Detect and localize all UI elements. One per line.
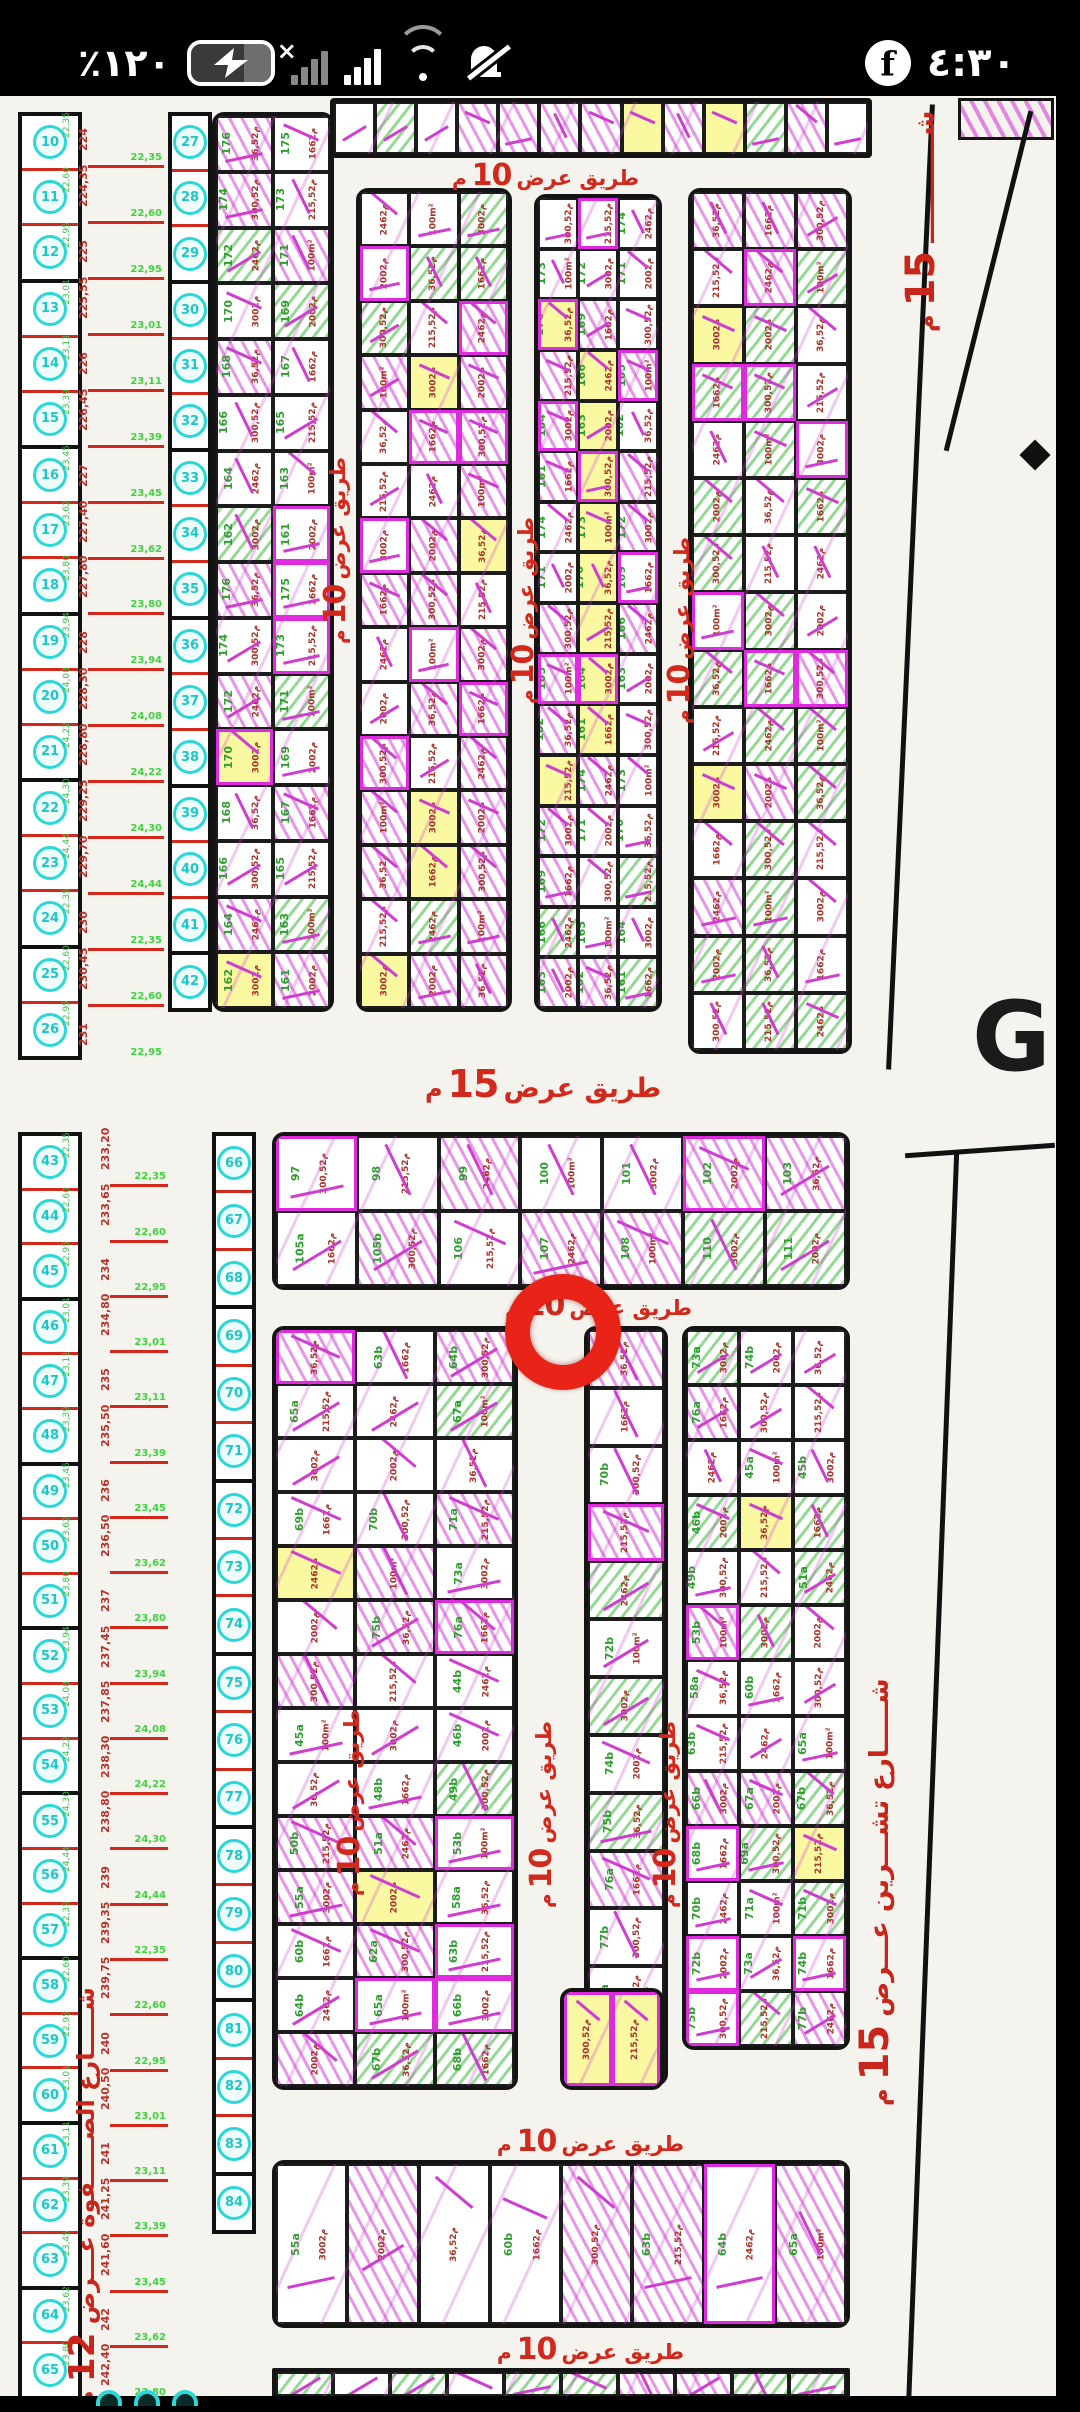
plot-cell: 176300,5م2 — [538, 198, 578, 249]
plot-line — [344, 2376, 378, 2396]
plot-area-label: 246م2 — [645, 207, 654, 239]
dimension-label: 23,94 — [130, 655, 162, 666]
plot-row: 76 — [216, 1713, 252, 1770]
plot-cell: 10336,5م2 — [765, 1136, 846, 1211]
plot-cell: 36,5م2 — [793, 1330, 846, 1385]
plot-block: 73a300م274b200م236,5م276a166م2300,5م2215… — [682, 1326, 850, 2050]
plot-number: 167 — [280, 801, 291, 824]
plot-cell: 63b166م2 — [355, 1330, 434, 1384]
plot-cell: 45b300م2 — [793, 1440, 846, 1495]
plot-circle-strip: 1022,351122,601222,951323,011423,111523,… — [18, 112, 82, 1060]
plot-cell — [539, 102, 580, 154]
plot-number-circle: 38 — [173, 740, 207, 774]
plot-number: 169 — [280, 300, 291, 323]
plot-cell: 167166م2 — [273, 339, 330, 395]
survey-number: 234,80 — [99, 1294, 112, 1336]
plot-number: 172 — [223, 244, 234, 267]
survey-row: 228,8024,22 — [88, 727, 164, 783]
plot-number: 163 — [279, 467, 290, 490]
plot-number: 106 — [453, 1237, 464, 1260]
plot-cell: 77b246م2 — [793, 1991, 846, 2046]
plot-cell: 164246م2 — [216, 451, 273, 507]
plot-cell: 100m² — [409, 192, 458, 246]
plot-number: 107 — [539, 1237, 550, 1260]
plot-line — [290, 1184, 344, 1198]
plot-row: 1423,11 — [22, 338, 78, 393]
plot-code: 69b — [294, 1507, 305, 1530]
plot-number: 171 — [279, 690, 290, 713]
location-ring-marker — [505, 1274, 621, 1390]
dimension-label: 23,80 — [134, 1613, 166, 1624]
survey-number: 227,80 — [77, 556, 90, 598]
plot-row: 70 — [216, 1367, 252, 1424]
plot-cell — [622, 102, 663, 154]
plot-area-label: 300,5م2 — [252, 179, 261, 220]
plot-number: 111 — [783, 1237, 794, 1260]
plot-number-circle: 34 — [173, 517, 207, 551]
plot-cell: 67b36,5م2 — [793, 1771, 846, 1826]
plot-number: 176 — [578, 465, 582, 488]
plot-cell: 300م2 — [360, 518, 409, 572]
plot-block: 17636,5م2175166م2174300,5م2173215,5م2172… — [212, 112, 334, 1012]
plot-cell: 215,5م2 — [793, 1826, 846, 1881]
survey-number: 233,20 — [99, 1128, 112, 1170]
plot-code: 49b — [448, 1777, 459, 1800]
plot-cell: 200م2 — [360, 246, 409, 300]
plot-cell: 169166م2 — [578, 299, 618, 350]
plot-code: 63b — [686, 1731, 697, 1754]
plot-area-label: 100m² — [309, 462, 318, 494]
plot-number: 175 — [618, 465, 622, 488]
cadastral-map-photo[interactable]: 1022,351122,601222,951323,011423,111523,… — [0, 96, 1056, 2412]
plot-code: 64b — [717, 2232, 728, 2255]
plot-cell: 300,5م2 — [459, 845, 508, 899]
plot-row: 27 — [172, 116, 208, 172]
plot-cell: 300م2 — [459, 192, 508, 246]
plot-number: 172 — [223, 690, 234, 713]
plot-area-label: 246م2 — [252, 909, 261, 941]
plot-area-label: 246م2 — [565, 916, 574, 948]
road-label-10m-vertical: م10طريق عرض — [506, 504, 541, 704]
plot-cell: 64b246م2 — [276, 1978, 355, 2032]
plot-cell: 36,5م2 — [409, 246, 458, 300]
plot-area-label: 300م2 — [319, 2228, 328, 2260]
survey-row: 237,8524,08 — [110, 1685, 168, 1740]
survey-row: 241,2523,39 — [110, 2182, 168, 2237]
dimension-label: 22,60 — [134, 2000, 166, 2011]
plot-line — [686, 2376, 720, 2396]
plot-row: 1323,01 — [22, 283, 78, 338]
plot-cell: 67a200م2 — [739, 1771, 792, 1826]
plot-cell: 164300م2 — [538, 401, 578, 452]
plot-cell: 215,5م2 — [692, 249, 744, 306]
plot-number: 105a — [295, 1233, 306, 1263]
plot-cell: 246م2 — [739, 1716, 792, 1771]
plot-cell: 64b300,5م2 — [435, 1330, 514, 1384]
plot-area-label: 300م2 — [645, 916, 654, 948]
plot-area-label: 300م2 — [390, 1719, 399, 1751]
survey-row: 227,4023,62 — [88, 504, 164, 560]
plot-area-label: 36,5م2 — [815, 1340, 824, 1375]
plot-cell: 53b100m² — [435, 1816, 514, 1870]
plot-cell: 200م2 — [355, 1870, 434, 1924]
dimension-label: 22,95 — [130, 1047, 162, 1058]
plot-cell: 48b166م2 — [355, 1762, 434, 1816]
road-label-10m-vertical: م10طريق عرض — [524, 1708, 559, 1908]
dimension-label: 22,35 — [130, 152, 162, 163]
plot-cell: 51a246م2 — [793, 1550, 846, 1605]
plot-number-circle: 70 — [217, 1377, 251, 1411]
plot-cell: 166300,5م2 — [216, 395, 273, 451]
dimension-label: 23,62 — [62, 500, 72, 526]
dimension-label: 22,35 — [62, 112, 72, 138]
plot-cell: 172300م2 — [538, 806, 578, 857]
plot-row: 67 — [216, 1193, 252, 1250]
plot-code: 75b — [371, 1615, 382, 1638]
plot-cell: 246م2 — [588, 1561, 664, 1619]
plot-row: 79 — [216, 1886, 252, 1943]
plot-area-label: 246م2 — [747, 2228, 756, 2260]
plot-number: 173 — [618, 769, 627, 792]
plot-row: 34 — [172, 507, 208, 563]
plot-row: 33 — [172, 452, 208, 508]
plot-number-circle: 72 — [217, 1493, 251, 1527]
plot-cell: 300م2 — [692, 764, 744, 821]
survey-row: 233,2022,35 — [110, 1132, 168, 1187]
plot-cell: 246م2 — [355, 1384, 434, 1438]
plot-row: 31 — [172, 340, 208, 396]
plot-area-label: 166م2 — [605, 714, 614, 746]
plot-area-label: 215,5م2 — [632, 2018, 641, 2059]
plot-number: 165 — [275, 411, 286, 434]
plot-area-label: 166م2 — [323, 1935, 332, 1967]
plot-number-circle: 83 — [217, 2127, 251, 2161]
plot-row: 38 — [172, 731, 208, 788]
plot-cell: 73a36,5م2 — [739, 1936, 792, 1991]
plot-cell: 246م2 — [459, 301, 508, 355]
plot-cell: 200م2 — [692, 936, 744, 993]
plot-area-label: 100m² — [565, 663, 574, 695]
plot-cell: 110300م2 — [683, 1211, 764, 1286]
plot-cell: 164300م2 — [618, 907, 658, 958]
plot-code: 71a — [448, 1508, 459, 1531]
plot-number: 161 — [578, 718, 587, 741]
plot-number-circle: 28 — [173, 181, 207, 215]
plot-cell: 100m² — [360, 355, 409, 409]
plot-number: 164 — [578, 667, 587, 690]
plot-area-label: 200م2 — [817, 605, 826, 637]
plot-cell: 246م2 — [796, 535, 848, 592]
street-label-15m-top: م15شــــــــــــ — [898, 92, 944, 332]
plot-number: 161 — [280, 523, 291, 546]
plot-area-label: 215,5م2 — [565, 760, 574, 801]
plot-code: 70b — [691, 1897, 702, 1920]
plot-cell: 300,5م2 — [744, 364, 796, 421]
plot-number: 171 — [279, 244, 290, 267]
plot-area-label: 215,5م2 — [323, 1822, 332, 1863]
plot-area-label: 166م2 — [323, 1503, 332, 1535]
plot-area-label: 215,5م2 — [714, 715, 723, 756]
plot-cell — [580, 102, 621, 154]
dimension-label: 23,94 — [62, 612, 72, 638]
plot-number: 168 — [221, 801, 232, 824]
dimension-label: 22,60 — [62, 945, 72, 971]
plot-area-label: 300,5م2 — [584, 2018, 593, 2059]
plot-code: 72b — [691, 1952, 702, 1975]
plot-area-label: 100m² — [309, 239, 318, 271]
plot-cell: 64b246م2 — [704, 2164, 775, 2324]
plot-area-label: 36,5م2 — [252, 349, 261, 384]
plot-cell: 74b200م2 — [739, 1330, 792, 1385]
plot-number: 170 — [223, 746, 234, 769]
alarm-muted-icon — [465, 42, 505, 84]
plot-area-label: 300م2 — [311, 1449, 320, 1481]
dimension-label: 24,44 — [62, 833, 72, 859]
plot-cell: 166م2 — [744, 650, 796, 707]
dimension-label: 23,45 — [134, 1503, 166, 1514]
plot-area-label: 300,5م2 — [818, 200, 827, 241]
plot-cell: 163200م2 — [578, 401, 618, 452]
plot-code: 70b — [368, 1507, 379, 1530]
plot-area-label: 300,5م2 — [605, 456, 614, 497]
plot-number-circle: 40 — [173, 852, 207, 886]
survey-number: 228 — [77, 631, 90, 654]
plot-area-label: 200م2 — [605, 815, 614, 847]
plot-number-circle: 29 — [173, 237, 207, 271]
plot-code: 76a — [452, 1616, 463, 1639]
plot-cell: 300م2 — [739, 1605, 792, 1660]
plot-cell: 300م2 — [796, 878, 848, 935]
plot-area-label: 300,5م2 — [761, 1392, 770, 1433]
plot-row: 1723,62 — [22, 504, 78, 559]
plot-cell: 36,5م2 — [744, 478, 796, 535]
plot-cell: 101300م2 — [602, 1136, 683, 1211]
plot-row: 75 — [216, 1656, 252, 1713]
plot-row: 74 — [216, 1597, 252, 1655]
plot-line — [631, 411, 645, 436]
plot-line — [533, 1260, 588, 1275]
plot-code: 49b — [686, 1566, 697, 1589]
plot-cell: 71b300م2 — [793, 1881, 846, 1936]
plot-row: 40 — [172, 843, 208, 899]
plot-block: 97300,5م298215,5م299246م2100100m²101300م… — [272, 1132, 850, 1290]
plot-number: 176 — [618, 718, 622, 741]
plot-cell: 49b300,5م2 — [435, 1762, 514, 1816]
plot-number: 164 — [223, 913, 234, 936]
plot-cell: 100m² — [360, 790, 409, 844]
plot-cell: 166م2 — [588, 1388, 664, 1446]
dimension-label: 24,30 — [130, 823, 162, 834]
plot-number-circle: 82 — [217, 2070, 251, 2104]
survey-number: 228,80 — [77, 724, 90, 766]
plot-number: 99 — [458, 1166, 469, 1181]
plot-cell: 215,5م2 — [459, 573, 508, 627]
street-boundary-line — [905, 1143, 1055, 1158]
street-label-tishreen: م15شـــــارع تشـــرين عـــرض — [852, 1506, 898, 2106]
plot-area-label: 200م2 — [645, 258, 654, 290]
road-label-10m: م10طريق عرض — [497, 2124, 684, 2159]
plot-line — [711, 111, 737, 125]
plot-row: 39 — [172, 788, 208, 844]
plot-number: 176 — [538, 212, 542, 235]
survey-row: 22422,35 — [88, 112, 164, 168]
plot-area-label: 300,5م2 — [592, 2223, 601, 2264]
plot-cell: 171100m² — [273, 228, 330, 284]
plot-code: 65a — [797, 1732, 808, 1755]
plot-cell: 16236,5م2 — [578, 957, 618, 1008]
plot-line — [424, 125, 448, 141]
plot-row: 83 — [216, 2117, 252, 2175]
plot-area-label: 215,5م2 — [605, 203, 614, 244]
plot-cell: 246م2 — [796, 993, 848, 1050]
plot-cell: 200م2 — [459, 790, 508, 844]
plot-number: 163 — [538, 971, 547, 994]
plot-cell: 161166م2 — [578, 704, 618, 755]
plot-number: 97 — [290, 1166, 301, 1181]
plot-number-circle: 36 — [173, 629, 207, 663]
plot-area-label: 215,5م2 — [645, 861, 654, 902]
plot-row: 78 — [216, 1829, 252, 1886]
plot-code: 51a — [373, 1832, 384, 1855]
plot-cell: 70b246م2 — [686, 1881, 739, 1936]
plot-number-circle: 35 — [173, 572, 207, 606]
plot-cell: 165215,5م2 — [273, 395, 330, 451]
plot-cell: 300م2 — [796, 421, 848, 478]
plot-cell: 300م2 — [360, 954, 409, 1008]
plot-number: 167 — [618, 870, 622, 893]
plot-number: 162 — [578, 971, 585, 994]
survey-row: 229,7024,44 — [88, 839, 164, 895]
plot-cell: 36,5م2 — [744, 936, 796, 993]
plot-code: 45b — [797, 1456, 808, 1479]
plot-area-label: 246م2 — [565, 511, 574, 543]
survey-row: 23924,44 — [110, 1850, 168, 1905]
plot-cell: 246م2 — [360, 192, 409, 246]
survey-row: 228,3024,08 — [88, 671, 164, 727]
survey-row: 226,4523,39 — [88, 392, 164, 448]
dimension-label: 23,11 — [130, 376, 162, 387]
plot-cell: 300م2 — [409, 790, 458, 844]
plot-cell: 100m² — [692, 592, 744, 649]
plot-row: 2224,30 — [22, 782, 78, 837]
survey-number: 235,50 — [99, 1404, 112, 1446]
dimension-label: 23,62 — [62, 1516, 72, 1542]
plot-area-label: 300,5م2 — [380, 307, 389, 348]
plot-area-label: 215,5م2 — [309, 179, 318, 220]
plot-row: 71 — [216, 1424, 252, 1482]
plot-cell: 162300م2 — [216, 506, 273, 562]
survey-number: 230,45 — [77, 948, 90, 990]
plot-row: 1623,45 — [22, 449, 78, 504]
dimension-label: 22,35 — [134, 1945, 166, 1956]
facebook-icon: f — [865, 40, 911, 86]
signal-bars-icon — [344, 41, 381, 85]
plot-number: 166 — [578, 364, 587, 387]
plot-cell: 65a215,5م2 — [276, 1384, 355, 1438]
survey-number: 236 — [99, 1479, 112, 1502]
plot-code: 71b — [797, 1897, 808, 1920]
plot-cell: 171200م2 — [578, 806, 618, 857]
status-left: ٪١٢٠ × — [78, 40, 505, 86]
plot-area-label: 300,5م2 — [773, 1833, 782, 1874]
dimension-label: 23,01 — [130, 320, 162, 331]
plot-cell: 60b166م2 — [739, 1660, 792, 1715]
survey-row: 238,3024,22 — [110, 1740, 168, 1795]
plot-number-circle: 30 — [173, 293, 207, 327]
plot-cell: 176300,5م2 — [618, 704, 658, 755]
plot-cell: 300,5م2 — [561, 2164, 632, 2324]
dimension-label: 23,01 — [62, 1297, 72, 1323]
plot-number: 164 — [223, 467, 234, 490]
survey-number-lane: 22422,35224,3522,6022522,95225,5523,0122… — [88, 112, 164, 1060]
plot-cell: 161166م2 — [618, 957, 658, 1008]
plot-area-label: 300,5م2 — [645, 709, 654, 750]
plot-line — [799, 2385, 837, 2396]
plot-cell: 77b300,5م2 — [588, 1908, 664, 1966]
survey-row: 225,5523,01 — [88, 280, 164, 336]
plot-line — [644, 2276, 692, 2289]
plot-code: 67b — [371, 2047, 382, 2070]
dimension-label: 24,08 — [130, 711, 162, 722]
plot-cell: 75b36,5م2 — [355, 1600, 434, 1654]
battery-percent: ٪١٢٠ — [78, 41, 171, 85]
plot-cell: 300,5م2 — [796, 650, 848, 707]
plot-number-circle: 80 — [217, 1954, 251, 1988]
plot-block — [330, 98, 872, 158]
plot-number: 161 — [618, 971, 627, 994]
plot-number: 175 — [578, 212, 582, 235]
plot-cell: 166246م2 — [618, 603, 658, 654]
dimension-label: 23,11 — [134, 1392, 166, 1403]
plot-number: 167 — [578, 617, 582, 640]
plot-area-label: 200م2 — [482, 1719, 491, 1751]
plot-row: 2124,22 — [22, 726, 78, 782]
survey-number: 234 — [99, 1258, 112, 1281]
survey-row: 241,6023,45 — [110, 2237, 168, 2292]
plot-number: 170 — [538, 313, 545, 336]
plot-cell: 246م2 — [409, 464, 458, 518]
plot-cell: 215,5م2 — [796, 364, 848, 421]
plot-number-circle: 32 — [173, 404, 207, 438]
plot-area-label: 100m² — [565, 258, 574, 290]
dimension-label: 24,22 — [62, 722, 72, 748]
plot-number: 173 — [538, 262, 547, 285]
plot-number: 174 — [618, 212, 627, 235]
plot-area-label: 166م2 — [633, 1864, 642, 1896]
plot-area-label: 36,5م2 — [827, 1781, 836, 1816]
plot-cell: 167215,5م2 — [538, 350, 578, 401]
plot-cell: 16836,5م2 — [216, 785, 273, 841]
plot-cell: 70b300,5م2 — [355, 1492, 434, 1546]
plot-cell: 105a166م2 — [276, 1211, 357, 1286]
plot-code: 73a — [691, 1346, 702, 1369]
plot-cell: 166م2 — [459, 682, 508, 736]
plot-number: 176 — [221, 578, 232, 601]
plot-number: 170 — [578, 566, 585, 589]
plot-code: 62a — [368, 1940, 379, 1963]
plot-cell: 215,5م2 — [739, 1991, 792, 2046]
plot-number-circle: 68 — [217, 1261, 251, 1295]
dimension-label: 22,35 — [62, 1132, 72, 1158]
plot-cell: 44b246م2 — [435, 1654, 514, 1708]
plot-area-label: 200م2 — [380, 693, 389, 725]
plot-number: 172 — [578, 262, 587, 285]
plot-row: 66 — [216, 1136, 252, 1193]
clock-time: ٤:٣٠ — [927, 40, 1016, 86]
dimension-label: 22,95 — [62, 222, 72, 248]
plot-area-label: 300م2 — [565, 410, 574, 442]
plot-line — [588, 111, 614, 125]
